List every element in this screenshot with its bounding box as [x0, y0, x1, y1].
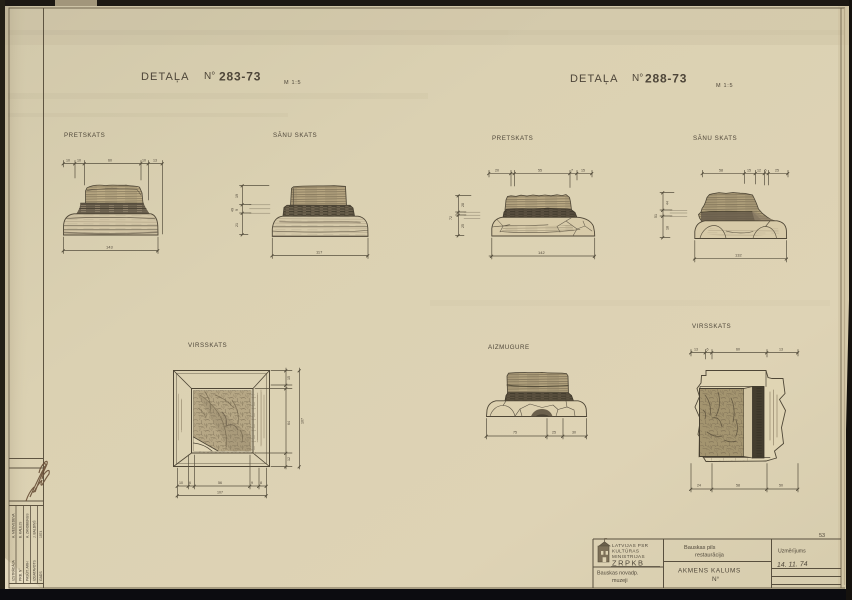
- svg-text:IZSTRĀDĀJA: IZSTRĀDĀJA: [12, 560, 16, 581]
- svg-text:288-73: 288-73: [645, 72, 687, 86]
- svg-text:KULTŪRAS: KULTŪRAS: [612, 548, 639, 554]
- svg-text:21: 21: [235, 223, 239, 227]
- svg-text:M 1:5: M 1:5: [284, 80, 301, 86]
- svg-text:14. 11. 74: 14. 11. 74: [777, 561, 808, 569]
- svg-text:GADS: GADS: [39, 571, 43, 581]
- svg-text:muzeji: muzeji: [612, 578, 628, 584]
- svg-text:25: 25: [461, 224, 465, 228]
- svg-text:51: 51: [654, 214, 658, 218]
- svg-text:15: 15: [581, 168, 585, 172]
- svg-text:142: 142: [538, 250, 545, 255]
- svg-text:28: 28: [461, 203, 465, 207]
- svg-text:6: 6: [707, 348, 709, 352]
- svg-text:PRB. N°: PRB. N°: [19, 568, 23, 581]
- svg-text:50: 50: [779, 484, 783, 488]
- svg-text:6: 6: [189, 481, 191, 485]
- svg-text:13: 13: [153, 159, 157, 163]
- svg-text:25: 25: [552, 431, 556, 435]
- svg-text:LATVIJAS PSR: LATVIJAS PSR: [612, 543, 649, 548]
- svg-text:A. ZANDBERGS: A. ZANDBERGS: [26, 513, 30, 538]
- svg-text:75: 75: [513, 431, 517, 435]
- svg-text:30: 30: [572, 431, 576, 435]
- svg-text:1974: 1974: [39, 530, 43, 538]
- svg-text:Bauskas pils: Bauskas pils: [684, 545, 716, 551]
- svg-text:8: 8: [260, 481, 262, 485]
- svg-text:58: 58: [719, 168, 723, 172]
- svg-text:13: 13: [694, 348, 698, 352]
- svg-text:19: 19: [235, 194, 239, 198]
- svg-text:VIRSSKATS: VIRSSKATS: [692, 323, 731, 330]
- svg-text:N°: N°: [712, 575, 720, 583]
- svg-text:AIZMUGURE: AIZMUGURE: [488, 344, 530, 351]
- svg-text:15: 15: [287, 376, 291, 380]
- svg-text:107: 107: [301, 418, 305, 424]
- svg-text:6: 6: [765, 168, 767, 172]
- svg-text:Uzmērījums: Uzmērījums: [778, 549, 806, 555]
- svg-text:18: 18: [666, 226, 670, 230]
- svg-text:143: 143: [106, 245, 113, 250]
- svg-text:107: 107: [217, 491, 223, 495]
- svg-text:PASŪT. ARH: PASŪT. ARH: [26, 561, 30, 581]
- svg-text:PRETSKATS: PRETSKATS: [492, 135, 533, 142]
- svg-text:SĀNU SKATS: SĀNU SKATS: [693, 135, 737, 142]
- svg-text:restaurācija: restaurācija: [695, 553, 725, 559]
- svg-text:60: 60: [108, 159, 112, 163]
- svg-text:SĀNU SKATS: SĀNU SKATS: [273, 132, 317, 139]
- svg-text:12: 12: [287, 457, 291, 461]
- svg-text:55: 55: [538, 168, 542, 172]
- svg-text:AKMENS KALUMS: AKMENS KALUMS: [678, 568, 741, 575]
- svg-text:25: 25: [775, 168, 779, 172]
- svg-text:PRETSKATS: PRETSKATS: [64, 132, 105, 139]
- svg-text:20: 20: [495, 168, 499, 172]
- svg-text:N°: N°: [632, 73, 643, 84]
- svg-text:M 1:5: M 1:5: [716, 83, 733, 89]
- svg-text:N°: N°: [204, 71, 215, 82]
- svg-text:10: 10: [142, 159, 146, 163]
- svg-text:53: 53: [819, 533, 825, 539]
- svg-text:49: 49: [231, 208, 235, 212]
- svg-text:12: 12: [757, 168, 761, 172]
- svg-text:B. KALEJS: B. KALEJS: [19, 521, 23, 538]
- svg-text:24: 24: [697, 484, 701, 488]
- svg-text:60: 60: [736, 348, 740, 352]
- svg-text:10: 10: [179, 481, 183, 485]
- svg-text:64: 64: [287, 421, 291, 425]
- svg-text:9: 9: [251, 481, 253, 485]
- svg-text:13: 13: [779, 348, 783, 352]
- svg-text:J. BALDIŅŠ: J. BALDIŅŠ: [32, 520, 37, 538]
- svg-text:DETAĻA: DETAĻA: [141, 71, 190, 83]
- svg-text:283-73: 283-73: [219, 70, 261, 84]
- svg-text:44: 44: [666, 201, 670, 205]
- svg-text:56: 56: [218, 481, 222, 485]
- svg-text:7: 7: [571, 168, 573, 172]
- svg-text:IZGATAVOTS: IZGATAVOTS: [33, 560, 37, 581]
- svg-text:Bauskas novadp.: Bauskas novadp.: [597, 571, 638, 577]
- svg-text:15: 15: [747, 168, 751, 172]
- svg-text:DETAĻA: DETAĻA: [570, 73, 619, 85]
- svg-text:VIRSSKATS: VIRSSKATS: [188, 342, 227, 349]
- svg-text:72: 72: [449, 216, 453, 220]
- svg-text:10: 10: [66, 159, 70, 163]
- svg-text:132: 132: [735, 253, 742, 258]
- svg-text:9: 9: [235, 209, 239, 211]
- svg-text:10: 10: [77, 159, 81, 163]
- svg-text:A. MEDVEDEVA: A. MEDVEDEVA: [12, 513, 16, 538]
- svg-text:117: 117: [316, 250, 323, 255]
- svg-text:58: 58: [736, 484, 740, 488]
